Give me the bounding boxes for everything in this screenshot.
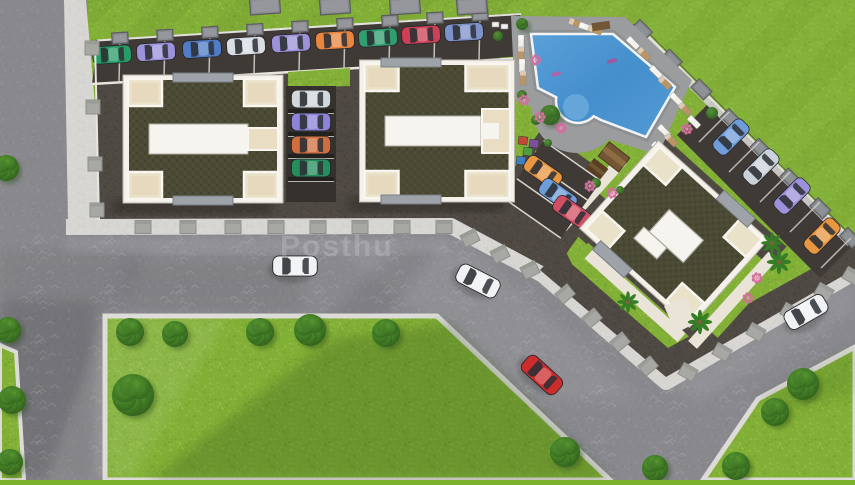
svg-text:Posthu: Posthu [280,230,394,263]
